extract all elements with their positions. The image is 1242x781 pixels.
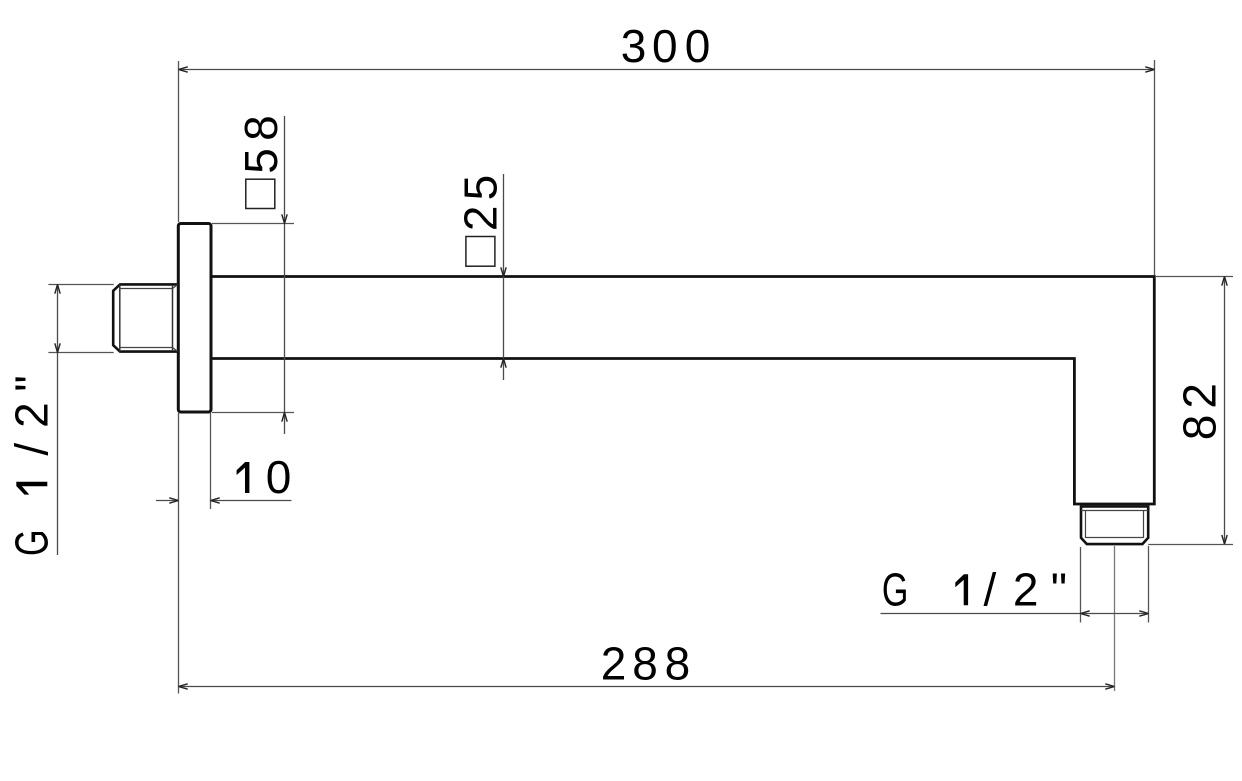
svg-text:300: 300 [621, 20, 711, 72]
svg-text:G: G [882, 564, 909, 616]
svg-text:/2": /2" [984, 564, 1068, 616]
svg-text:/2": /2" [6, 375, 58, 455]
svg-text:0: 0 [266, 451, 292, 503]
svg-text:G: G [6, 530, 58, 557]
svg-text:288: 288 [601, 638, 690, 690]
